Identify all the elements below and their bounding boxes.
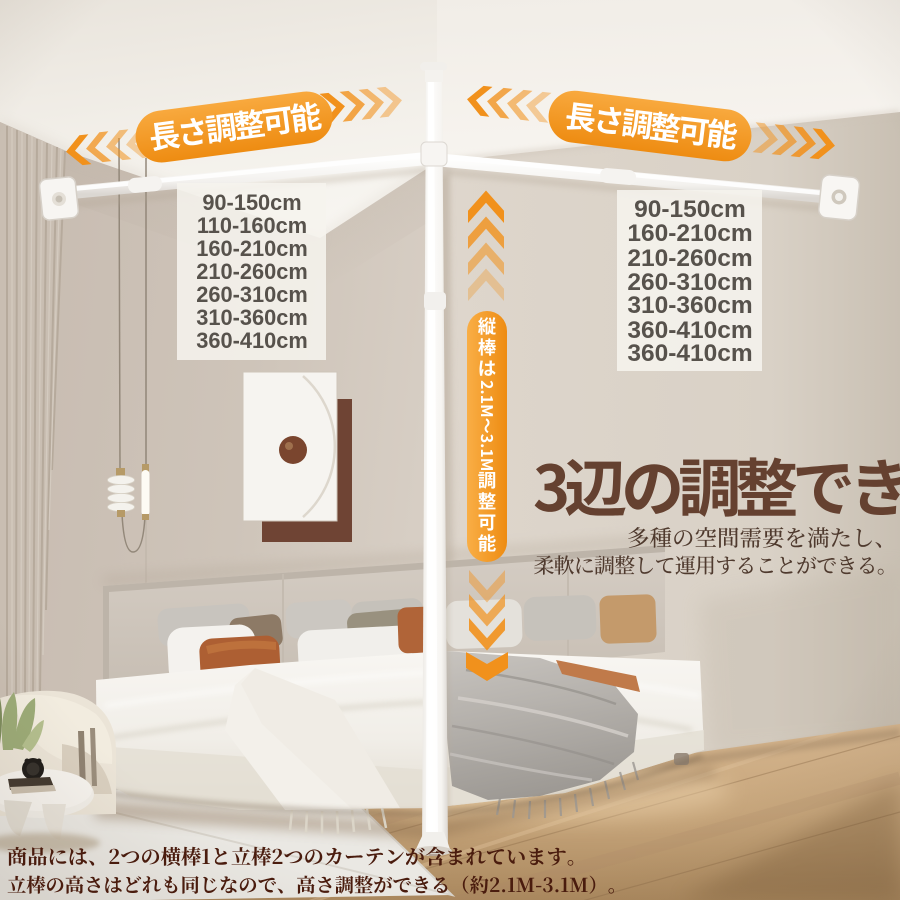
svg-text:90-150cm: 90-150cm (202, 190, 301, 215)
svg-text:210-260cm: 210-260cm (196, 259, 308, 284)
svg-text:160-210cm: 160-210cm (196, 236, 308, 261)
svg-text:310-360cm: 310-360cm (627, 292, 752, 319)
svg-text:310-360cm: 310-360cm (196, 305, 308, 330)
svg-text:160-210cm: 160-210cm (627, 220, 752, 247)
svg-text:360-410cm: 360-410cm (627, 340, 752, 367)
svg-text:210-260cm: 210-260cm (627, 245, 752, 272)
svg-text:110-160cm: 110-160cm (197, 213, 307, 238)
svg-text:260-310cm: 260-310cm (196, 282, 308, 307)
svg-text:360-410cm: 360-410cm (196, 328, 308, 353)
svg-text:90-150cm: 90-150cm (634, 196, 746, 223)
